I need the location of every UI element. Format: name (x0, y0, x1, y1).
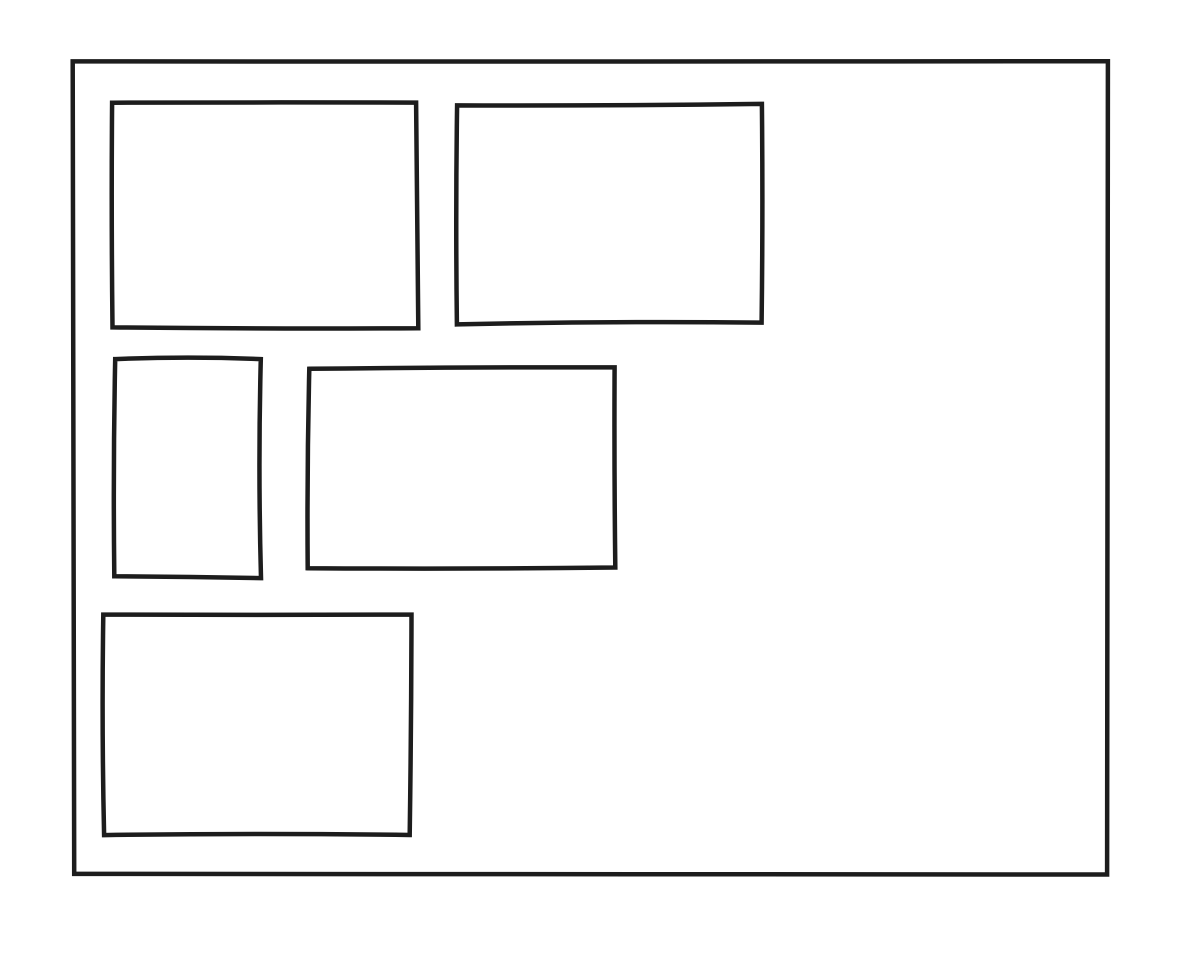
box-top-right (456, 104, 762, 325)
sketch-canvas (0, 0, 1192, 956)
box-middle-left (114, 358, 261, 578)
sketch-page (0, 0, 1192, 956)
box-middle-center (308, 367, 616, 568)
box-top-left (112, 102, 419, 328)
box-bottom-left (103, 615, 412, 836)
outer-frame (73, 61, 1108, 874)
